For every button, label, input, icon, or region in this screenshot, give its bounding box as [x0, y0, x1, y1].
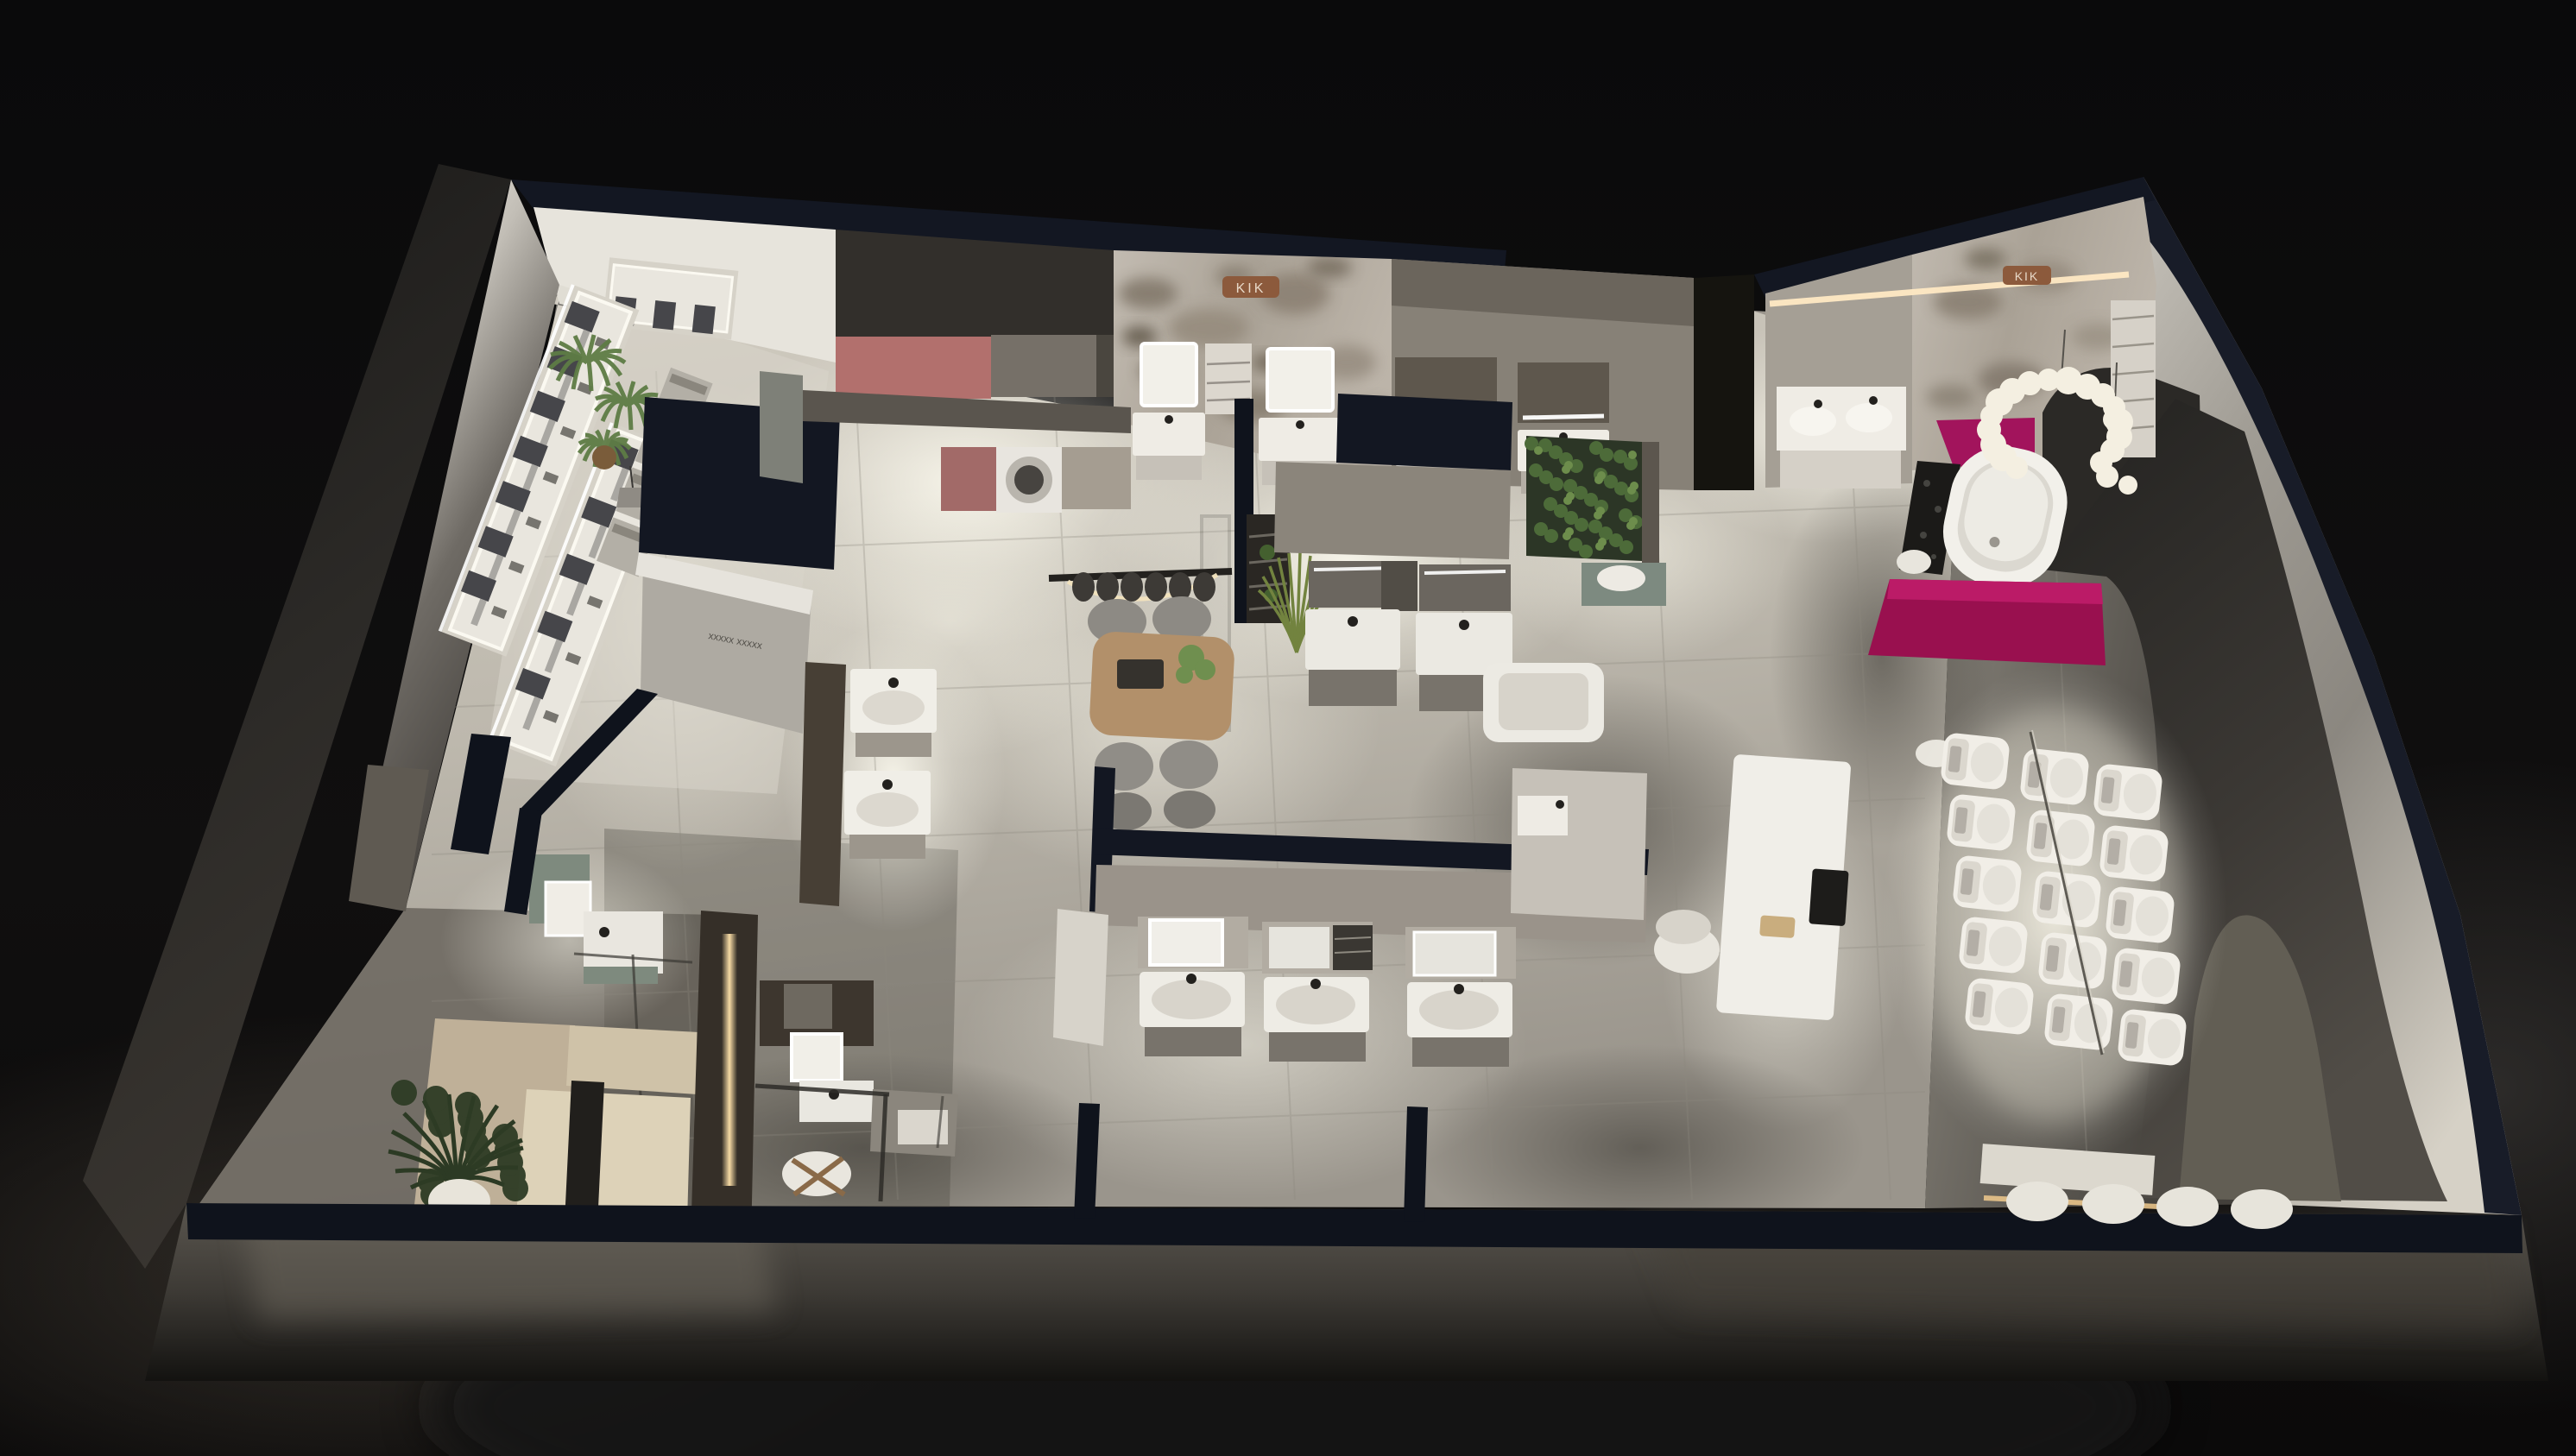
svg-text:KIK: KIK — [2015, 269, 2040, 283]
svg-text:KIK: KIK — [1236, 281, 1266, 296]
